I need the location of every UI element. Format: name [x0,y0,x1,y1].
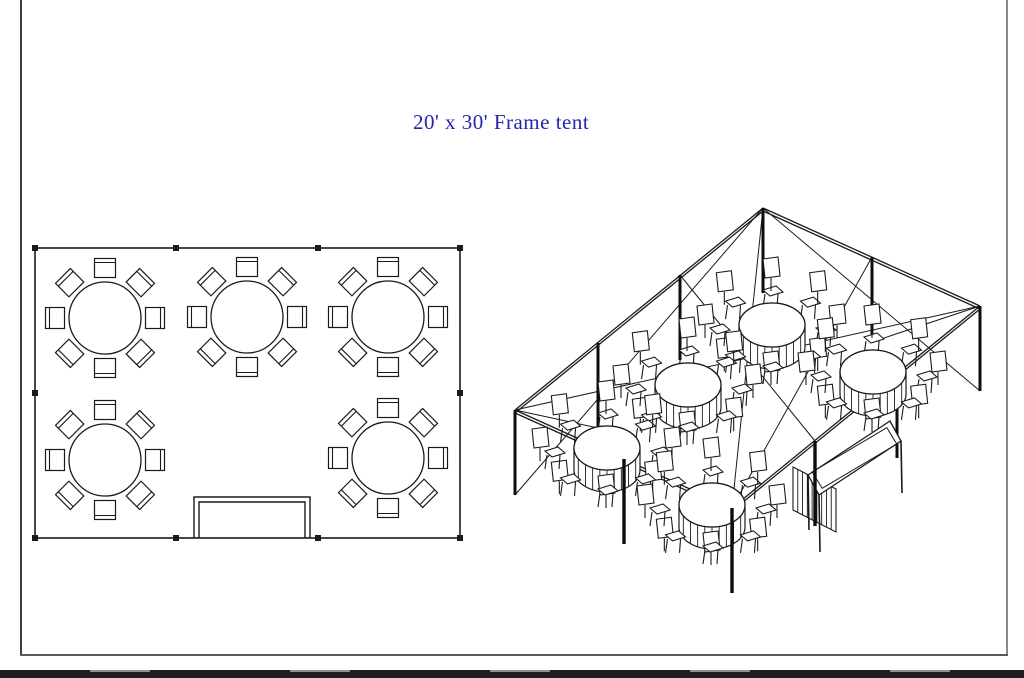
chair [378,399,399,418]
round-table-3d [637,437,786,565]
chair [188,307,207,328]
chair [46,450,65,471]
chair [146,308,165,329]
round-table [188,258,307,377]
pole-marker [32,535,38,541]
drawing-svg [0,0,1024,678]
chair [378,258,399,277]
pole-marker [32,245,38,251]
chair [46,308,65,329]
chair-3d [716,271,745,319]
round-table-3d [532,380,681,508]
chair [95,501,116,520]
round-table-3d [613,317,762,445]
chair-3d [632,331,661,379]
chair [378,499,399,518]
buffet-table [194,497,310,538]
pole-marker [173,245,179,251]
drawing-sheet: 20' x 30' Frame tent [0,0,1024,678]
round-table-3d [798,304,947,432]
plan-view [32,245,463,541]
chair [429,448,448,469]
pole-marker [32,390,38,396]
chair [237,258,258,277]
chair [146,450,165,471]
chair [378,358,399,377]
chair [329,448,348,469]
pole-marker [457,535,463,541]
round-table [329,258,448,377]
pole-marker [457,390,463,396]
chair [95,359,116,378]
round-table [329,399,448,518]
pole-marker [173,535,179,541]
chair-3d [703,437,723,488]
pole-marker [315,245,321,251]
chair-3d [679,317,699,368]
pole-marker [457,245,463,251]
chair-3d [763,257,783,308]
iso-view [515,208,980,593]
chair-3d [800,271,826,319]
chair-3d [740,451,766,499]
chair [95,259,116,278]
banquet-table-3d [793,421,902,552]
chair [237,358,258,377]
chair-3d [551,394,580,442]
chair [429,307,448,328]
chair [288,307,307,328]
round-table [46,401,165,520]
pole-marker [315,535,321,541]
page-bottom-bar [0,670,1024,678]
chair [329,307,348,328]
chair [95,401,116,420]
round-table [46,259,165,378]
